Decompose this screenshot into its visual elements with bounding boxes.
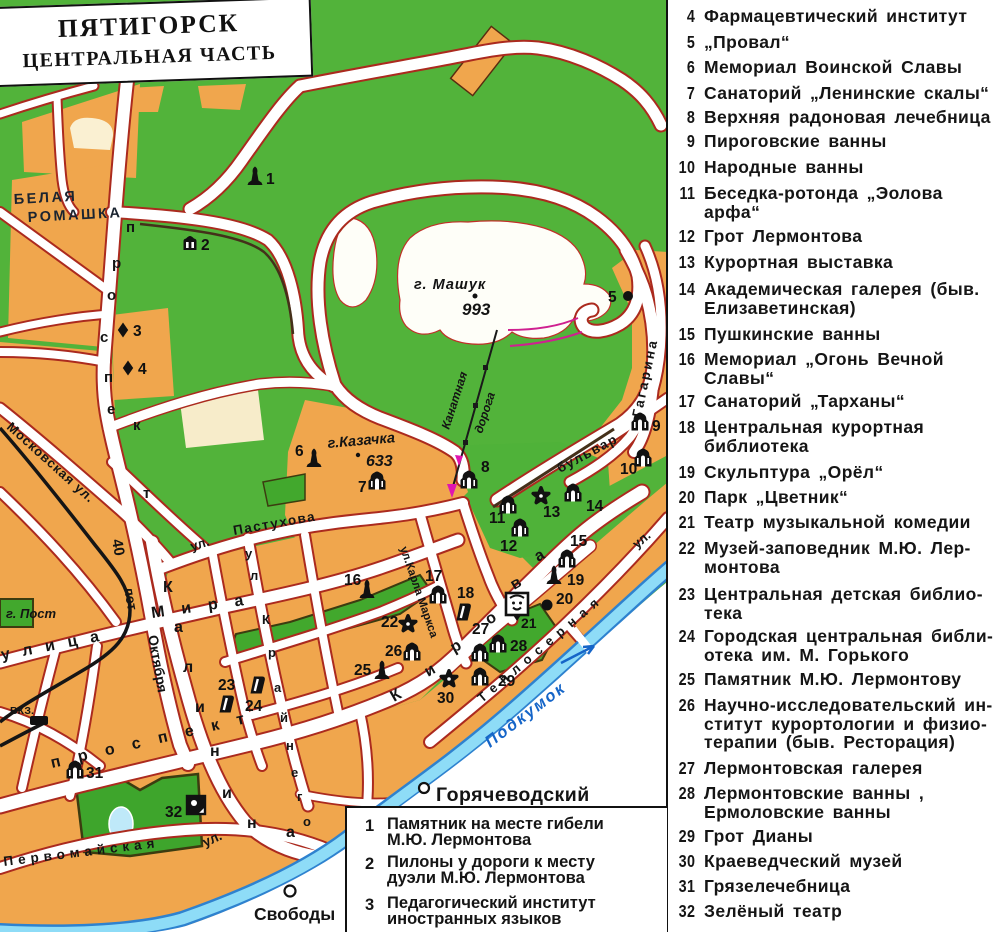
svg-text:р: р <box>268 645 276 660</box>
svg-text:г. Машук: г. Машук <box>414 277 486 293</box>
svg-text:31: 31 <box>86 765 104 782</box>
svg-text:11: 11 <box>489 510 506 527</box>
svg-text:о: о <box>303 814 311 829</box>
svg-text:и: и <box>195 699 205 716</box>
svg-text:р: р <box>112 255 121 272</box>
svg-text:18: 18 <box>457 585 475 602</box>
svg-text:Свободы: Свободы <box>254 904 335 924</box>
svg-text:й: й <box>280 710 288 725</box>
svg-text:Горячеводский: Горячеводский <box>436 784 590 806</box>
svg-text:4: 4 <box>138 361 147 378</box>
svg-text:13: 13 <box>543 504 561 521</box>
svg-text:К: К <box>262 612 270 627</box>
svg-text:а: а <box>274 680 282 695</box>
svg-text:т: т <box>143 485 150 502</box>
svg-text:а: а <box>174 619 183 636</box>
svg-text:п: п <box>126 219 135 236</box>
svg-text:30: 30 <box>437 690 454 707</box>
svg-text:8: 8 <box>481 459 490 476</box>
svg-text:19: 19 <box>567 572 585 589</box>
svg-text:24: 24 <box>245 698 263 715</box>
svg-text:633: 633 <box>366 453 393 470</box>
svg-text:6: 6 <box>295 443 304 460</box>
svg-text:7: 7 <box>358 479 367 496</box>
svg-text:3: 3 <box>133 323 142 340</box>
svg-text:о: о <box>107 287 116 304</box>
svg-text:32: 32 <box>165 804 182 821</box>
svg-text:29: 29 <box>498 673 516 690</box>
svg-text:л: л <box>183 659 193 676</box>
svg-text:23: 23 <box>218 677 236 694</box>
svg-text:и: и <box>222 785 232 802</box>
svg-text:н: н <box>247 815 257 832</box>
svg-text:е: е <box>291 765 298 780</box>
svg-text:у: у <box>245 546 253 561</box>
svg-text:БЕЛАЯ: БЕЛАЯ <box>13 189 77 208</box>
svg-text:5: 5 <box>608 289 617 306</box>
svg-text:с: с <box>100 329 108 346</box>
svg-text:к: к <box>133 417 141 434</box>
svg-text:28: 28 <box>510 638 528 655</box>
svg-text:16: 16 <box>344 572 362 589</box>
svg-text:20: 20 <box>556 591 573 608</box>
svg-text:е: е <box>107 401 115 418</box>
svg-text:22: 22 <box>381 614 398 631</box>
svg-text:25: 25 <box>354 662 372 679</box>
svg-text:21: 21 <box>521 615 537 631</box>
svg-text:а: а <box>286 824 295 841</box>
svg-text:9: 9 <box>652 418 661 435</box>
svg-text:К: К <box>163 579 173 596</box>
svg-text:17: 17 <box>425 568 442 585</box>
svg-text:г: г <box>297 789 303 804</box>
svg-text:н: н <box>286 738 294 753</box>
svg-text:14: 14 <box>586 498 604 515</box>
svg-text:40: 40 <box>108 538 128 557</box>
svg-text:л: л <box>250 568 258 583</box>
svg-text:2: 2 <box>201 237 210 254</box>
svg-text:15: 15 <box>570 533 588 550</box>
svg-text:12: 12 <box>500 538 517 555</box>
svg-text:п: п <box>104 369 113 386</box>
svg-text:ВКЗ.: ВКЗ. <box>10 705 34 717</box>
svg-text:26: 26 <box>385 643 403 660</box>
svg-text:27: 27 <box>472 621 489 638</box>
svg-text:н: н <box>210 743 220 760</box>
svg-text:993: 993 <box>462 300 491 319</box>
svg-text:г. Пост: г. Пост <box>6 606 57 621</box>
svg-text:1: 1 <box>266 171 275 188</box>
